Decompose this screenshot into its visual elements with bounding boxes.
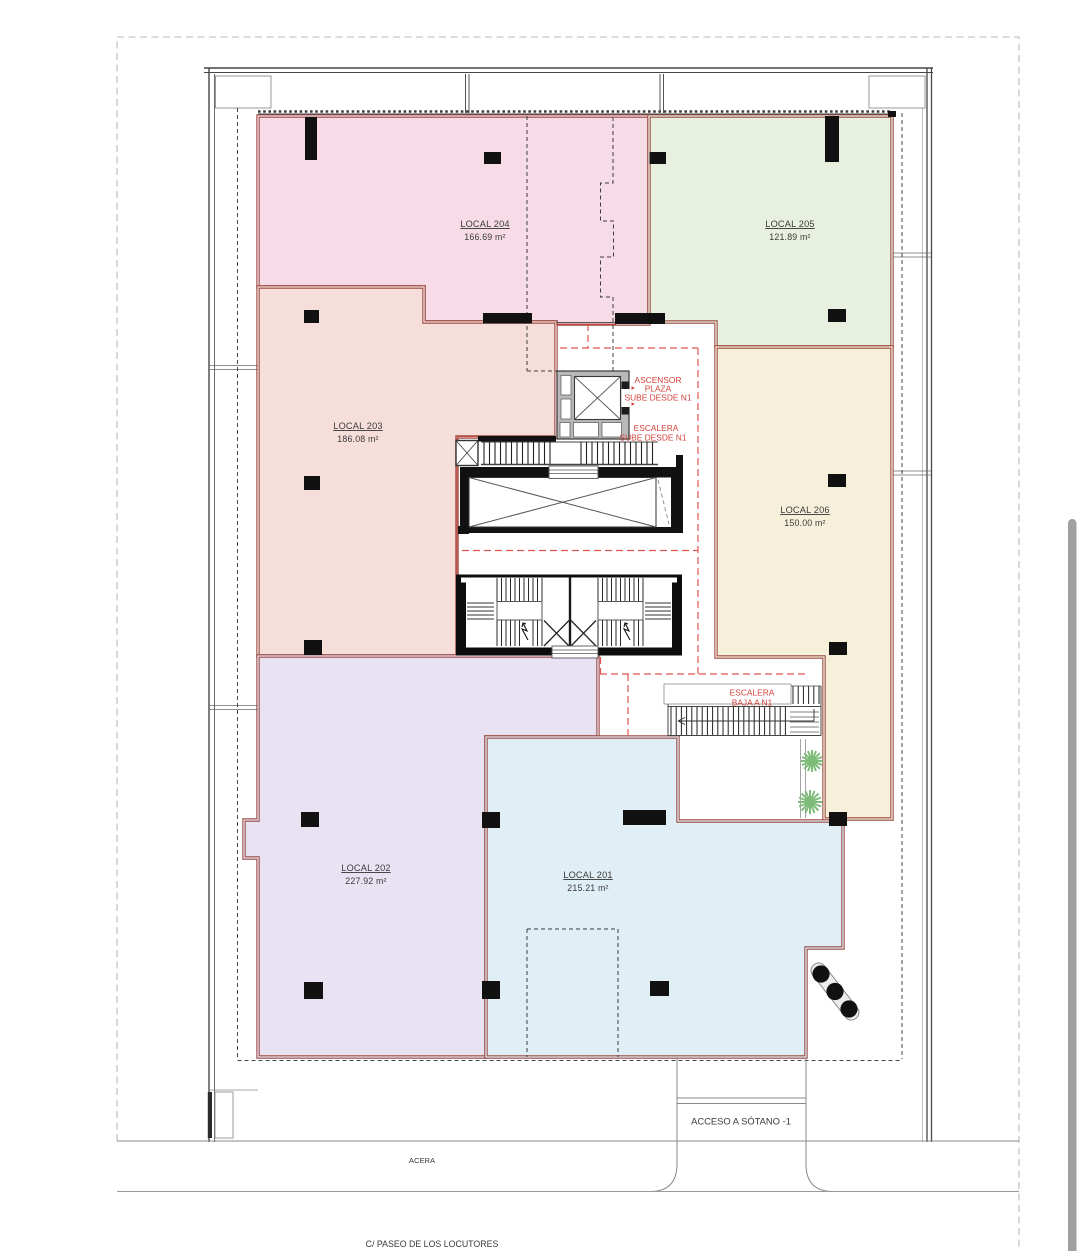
svg-text:ESCALERA: ESCALERA [634,423,679,433]
svg-text:ACERA: ACERA [409,1156,436,1165]
svg-text:LOCAL 202: LOCAL 202 [341,863,390,873]
svg-text:LOCAL 205: LOCAL 205 [765,219,814,229]
svg-text:LOCAL 204: LOCAL 204 [460,219,509,229]
svg-text:215.21 m²: 215.21 m² [567,883,608,893]
svg-text:LOCAL 203: LOCAL 203 [333,421,382,431]
svg-text:LOCAL 206: LOCAL 206 [780,505,829,515]
svg-text:186.08 m²: 186.08 m² [337,434,378,444]
svg-text:121.89 m²: 121.89 m² [769,232,810,242]
svg-text:SUBE DESDE N1: SUBE DESDE N1 [619,433,686,443]
svg-text:ACCESO A SÓTANO -1: ACCESO A SÓTANO -1 [691,1116,791,1127]
svg-text:150.00 m²: 150.00 m² [784,518,825,528]
svg-text:166.69 m²: 166.69 m² [464,232,505,242]
svg-text:227.92 m²: 227.92 m² [345,876,386,886]
svg-text:LOCAL 201: LOCAL 201 [563,870,612,880]
svg-text:ESCALERA: ESCALERA [730,688,775,698]
svg-text:SUBE DESDE N1: SUBE DESDE N1 [624,393,691,403]
svg-text:C/ PASEO DE LOS LOCUTORES: C/ PASEO DE LOS LOCUTORES [366,1239,499,1249]
